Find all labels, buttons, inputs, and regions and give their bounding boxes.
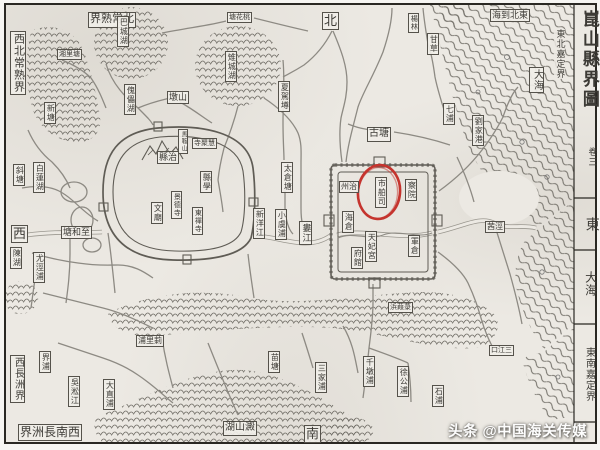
sea-texture	[430, 5, 574, 419]
label-hai-cang: 海倉	[342, 211, 354, 233]
label-shibosi: 市舶司	[375, 177, 387, 208]
label-jingde-si: 景德寺	[171, 191, 182, 219]
map-sheet: 崑山縣界圖卷三東大海東南嘉定界東北嘉定界海到北東北界熟常北西北常熟界西西長洲界界…	[4, 3, 597, 444]
label-sanjia-pu: 三家浦	[315, 362, 327, 393]
label-lou-river: 婁江	[299, 221, 312, 245]
label-xin-tang: 新塘	[44, 102, 56, 124]
label-east-sea: 大海	[584, 271, 597, 297]
label-zhou-zhi: 州治	[339, 181, 359, 193]
label-youjing-pu: 尤涇浦	[33, 252, 45, 283]
label-gancao: 甘草	[427, 33, 439, 55]
label-dazhi-pu: 大直浦	[103, 379, 115, 410]
label-title-volume: 卷三	[587, 147, 596, 167]
label-xian-xue: 縣學	[200, 171, 212, 193]
label-border-sw: 西長洲界	[10, 355, 25, 403]
label-yanglin: 楊林	[408, 13, 419, 33]
label-qianjing: 茜涇	[485, 221, 505, 233]
label-dianshan-lake: 湖山澱	[223, 421, 257, 436]
label-lujia-bang: 浜葭菉	[388, 302, 413, 313]
label-xugong-pu: 徐公浦	[397, 366, 409, 397]
label-xie-tang: 斜塘	[13, 164, 25, 186]
label-dun-shan: 墩山	[167, 91, 189, 104]
label-title: 崑山縣界圖	[580, 10, 598, 110]
label-chen-lake: 陳湖	[10, 247, 22, 269]
label-xian-zhi: 縣治	[157, 151, 179, 164]
label-dir-east: 東	[583, 217, 598, 232]
label-xiangli-tang: 湘里塘	[57, 49, 82, 60]
label-wusong-river: 吳淞江	[68, 376, 80, 407]
label-sanjiang-kou: 口江三	[489, 345, 514, 356]
label-dir-south: 南	[304, 425, 321, 443]
label-border-se: 東南嘉定界	[582, 347, 595, 402]
label-border-s: 界洲長南西	[18, 424, 82, 441]
label-maan-shan: 馬鞍山	[178, 129, 188, 154]
label-kuilei-lake: 傀儡湖	[124, 84, 136, 115]
label-border-ne: 東北嘉定界	[554, 29, 565, 79]
label-cha-yuan: 察院	[405, 179, 417, 201]
label-taohua-tang: 塘花桃	[227, 12, 252, 23]
label-bailian-lake: 白蓮湖	[33, 162, 45, 193]
label-liujiagang: 劉家港	[472, 115, 484, 146]
watermark-text: 头条 @中国海关传媒	[448, 420, 587, 441]
label-jun-cang: 軍倉	[408, 235, 420, 257]
label-taicang-tang: 太倉塘	[281, 162, 293, 193]
label-ne-to-sea: 海到北東	[490, 9, 530, 22]
label-xiaoyu-pu: 小虞浦	[275, 209, 287, 240]
label-ba-lake: 巴城湖	[117, 16, 129, 47]
label-shi-pu: 石浦	[432, 385, 444, 407]
label-qi-pu: 七浦	[443, 103, 455, 125]
label-wen-miao: 文廟	[151, 202, 163, 224]
label-huiju-si: 寺聚慧	[192, 138, 217, 149]
label-gu-tang: 古塘	[367, 127, 391, 142]
label-dir-north: 北	[322, 12, 339, 30]
label-zhihe-tang: 塘和至	[61, 226, 92, 239]
label-jie-pu: 界浦	[39, 351, 51, 373]
label-dongchan-si: 東禪寺	[192, 207, 203, 235]
label-sea-box: 大海	[529, 67, 544, 93]
label-miao-tang: 苗塘	[268, 351, 280, 373]
screenshot-root: 崑山縣界圖卷三東大海東南嘉定界東北嘉定界海到北東北界熟常北西北常熟界西西長洲界界…	[0, 0, 600, 450]
label-zhicheng-lake: 雉城湖	[225, 51, 237, 82]
label-dir-west: 西	[11, 225, 28, 243]
label-qiandun-pu: 千墩浦	[363, 356, 375, 387]
label-fu-guan: 府館	[351, 247, 363, 269]
label-xiajia-tang: 夏駕墫	[278, 81, 290, 112]
label-tianfei-gong: 天妃宮	[365, 231, 377, 262]
label-xinyang-river: 新洋江	[253, 208, 265, 239]
label-border-nw: 西北常熟界	[10, 31, 26, 95]
label-cili-pu: 浦里莿	[136, 335, 164, 347]
